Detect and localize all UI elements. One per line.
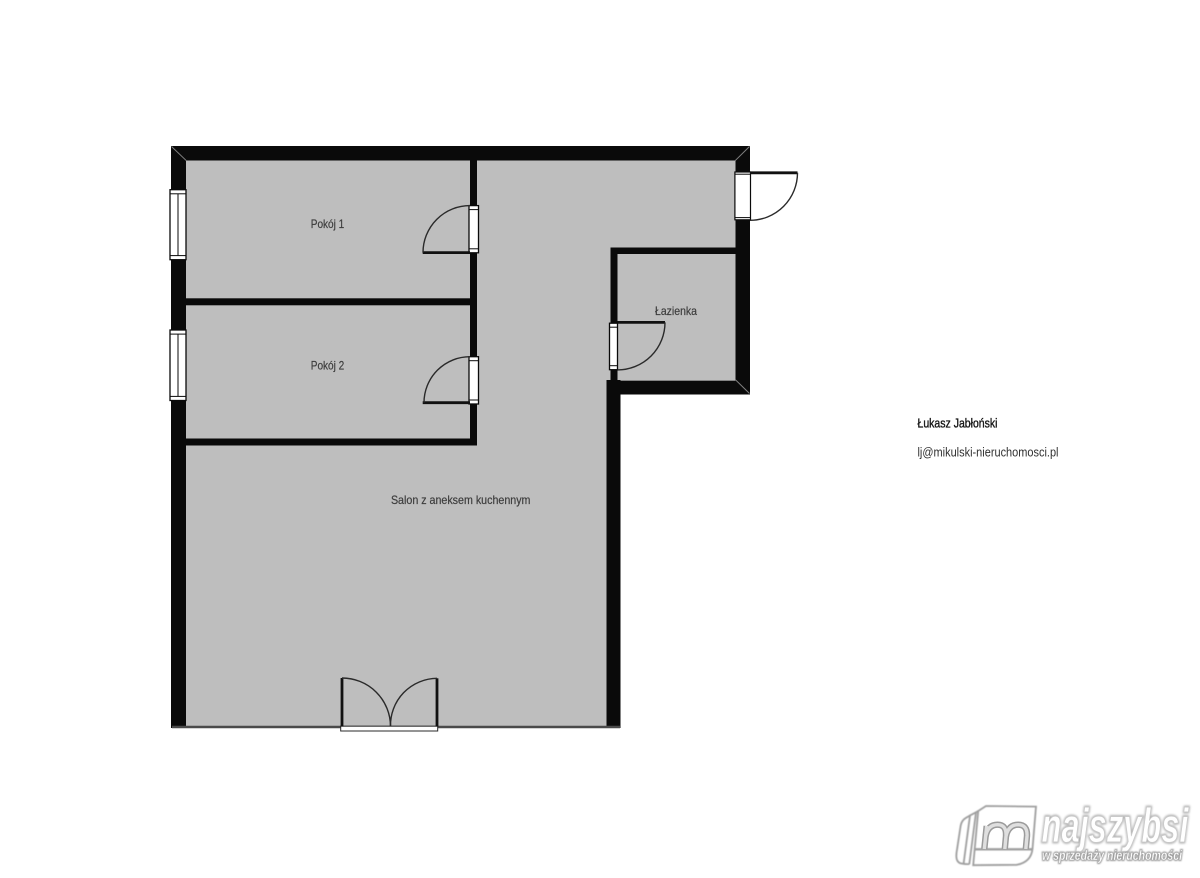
svg-text:w sprzedaży nieruchomości: w sprzedaży nieruchomości bbox=[1042, 847, 1183, 863]
svg-text:najszybsi: najszybsi bbox=[1042, 800, 1190, 853]
svg-text:Łazienka: Łazienka bbox=[655, 304, 697, 318]
svg-text:Salon z aneksem kuchennym: Salon z aneksem kuchennym bbox=[391, 493, 531, 507]
svg-text:Łukasz Jabłoński: Łukasz Jabłoński bbox=[918, 417, 998, 431]
svg-text:Pokój 1: Pokój 1 bbox=[311, 217, 345, 231]
svg-text:lj@mikulski-nieruchomosci.pl: lj@mikulski-nieruchomosci.pl bbox=[918, 446, 1059, 460]
svg-text:Pokój 2: Pokój 2 bbox=[311, 359, 345, 373]
